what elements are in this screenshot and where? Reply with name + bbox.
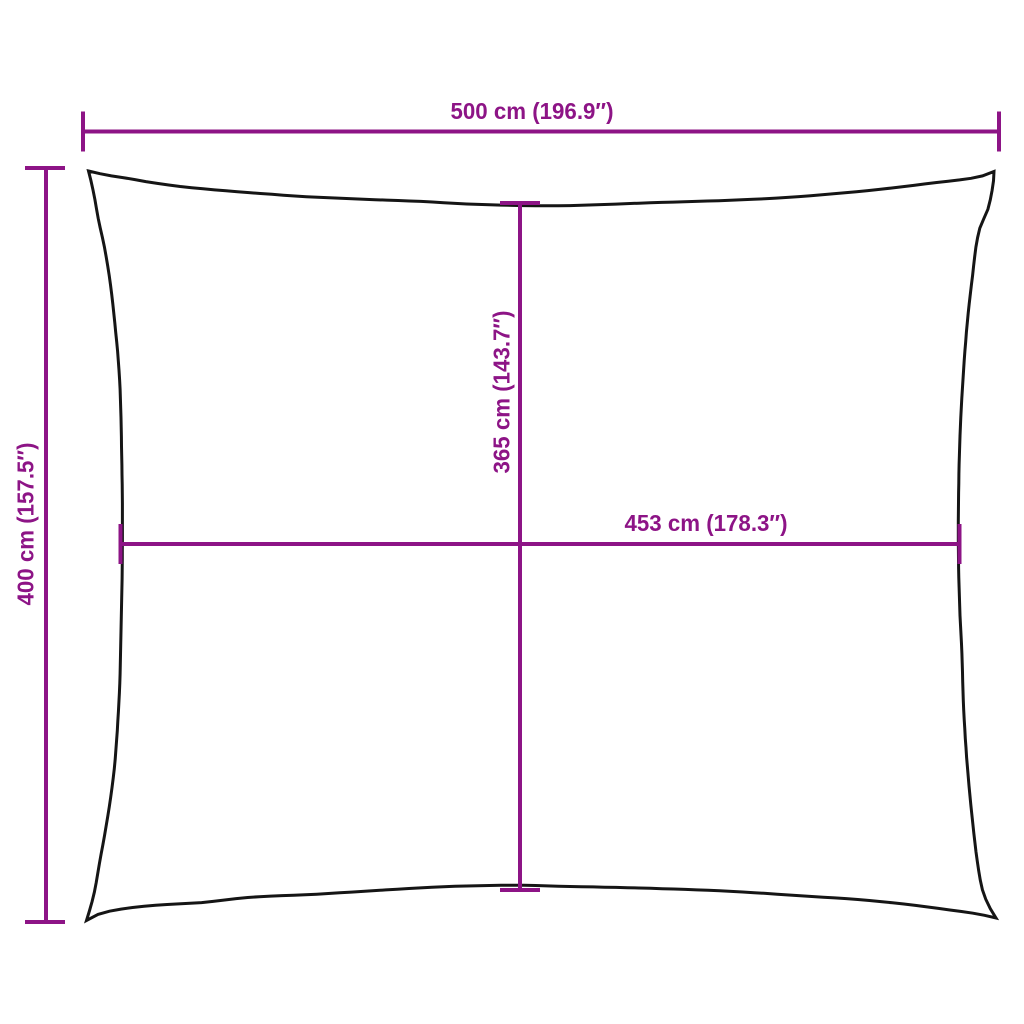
svg-text:365 cm (143.7″): 365 cm (143.7″) — [489, 311, 515, 474]
svg-text:400 cm (157.5″): 400 cm (157.5″) — [13, 443, 39, 606]
svg-text:500 cm (196.9″): 500 cm (196.9″) — [451, 98, 614, 124]
svg-text:453 cm (178.3″): 453 cm (178.3″) — [625, 510, 788, 536]
